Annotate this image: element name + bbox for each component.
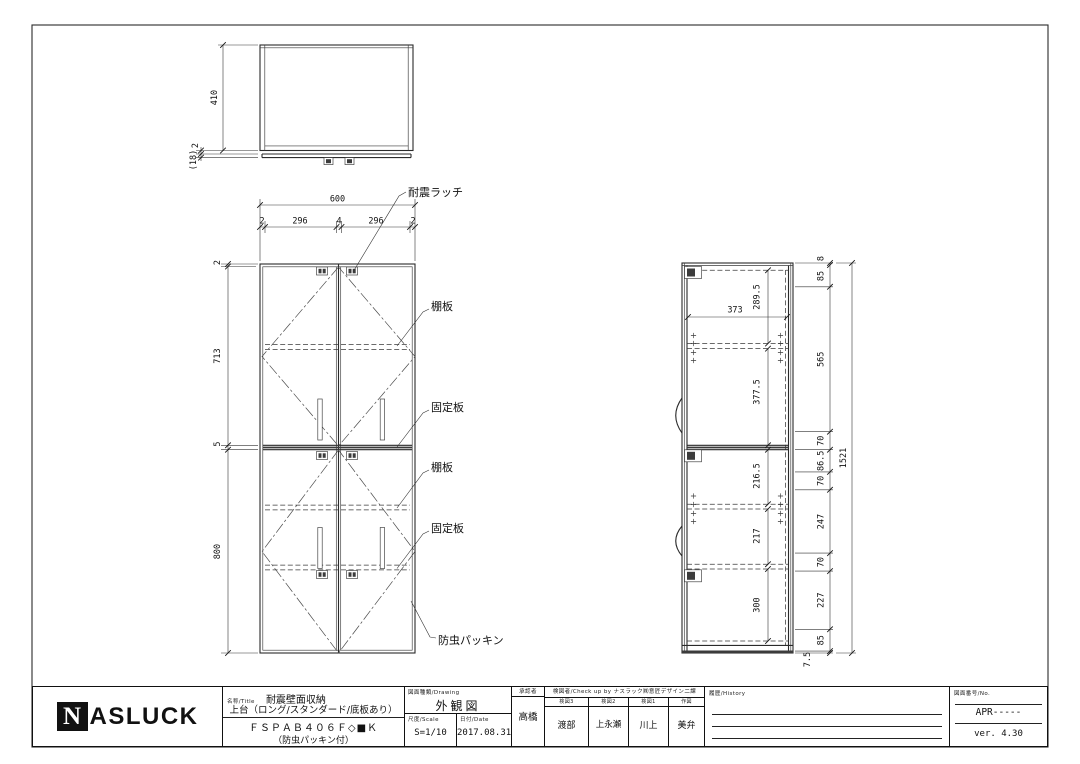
callout-fixed-lower: 固定板 [431,521,464,535]
dim-depth: 410 [210,90,220,105]
dim-seg-5: 2 [410,217,415,227]
nasluck-logo-text: ASLUCK [90,703,199,731]
chain-70a: 70 [817,436,827,446]
title-cell: 名称/Title 耐震壁面収納 上台（ロング/スタンダード/底板あり） ＦＳＰＡ… [222,687,404,746]
dim-h-4: 800 [213,544,223,559]
chain-8: 8 [817,256,827,261]
history-cell: 履歴/History [704,687,949,746]
callout-packing: 防虫パッキン [438,633,504,647]
date-cell: 日付/Date 2017.08.31 [457,714,511,746]
dim-shelf-to-divider: 377.5 [753,379,763,405]
checker-col-2: 検図2 上永瀬 [588,698,628,746]
checker-name-3: 川上 [629,718,668,731]
callout-shelf-upper: 棚板 [431,299,453,313]
checker-name-4: 美弁 [669,718,704,731]
front-cabinet [260,264,415,653]
number-value: APR----- [950,707,1047,718]
number-line-bottom [955,723,1042,724]
history-label: 履歴/History [709,689,745,697]
number-label: 図面番号/No. [954,689,990,697]
drawing-canvas: 410 2 (18) 600 2 296 4 296 2 [0,0,1080,764]
chain-86-5: 86.5 [817,451,827,471]
checker-col-3: 検図1 川上 [628,698,668,746]
chain-7-5: 7.5 [803,652,813,667]
history-line-1 [712,714,942,715]
callout-shelf-lower: 棚板 [431,460,453,474]
callout-latch: 耐震ラッチ [408,186,463,199]
side-view: 289.5 373 377.5 216.5 217 300 8 85 565 7… [676,256,856,667]
handle-profile-lower [676,526,682,556]
page-border [32,25,1048,747]
dim-door-thickness: (18) [189,150,199,170]
dim-shelf-to-fixed: 217 [753,528,763,543]
dim-top-gap: 2 [191,143,201,148]
top-view: 410 2 (18) [189,42,413,170]
handle-profile-upper [676,398,682,433]
dim-inner-width: 373 [727,306,742,316]
dim-seg-2: 296 [292,217,307,227]
history-line-2 [712,726,942,727]
date-value: 2017.08.31 [457,728,511,738]
date-label: 日付/Date [460,715,489,723]
checker-role-2: 検図2 [589,698,628,707]
scale-cell: 尺度/Scale S=1/10 [405,714,457,746]
checkup-label: 検図者/Check up by ナスラック㈱意匠デザイン二課 [545,687,704,698]
dim-overall-height: 1521 [839,448,849,468]
drawing-name: 外観図 [405,697,511,714]
chain-247: 247 [817,514,827,529]
logo-cell: N ASLUCK [33,687,222,746]
dim-seg-1: 2 [259,217,264,227]
front-height-dims: 2 713 5 800 [213,260,258,656]
chain-227: 227 [817,593,827,608]
history-line-3 [712,738,942,739]
drawing-cell: 図面種類/Drawing 外観図 尺度/Scale S=1/10 日付/Date… [404,687,511,746]
front-view: 600 2 296 4 296 2 [213,186,504,656]
dim-h-2: 713 [213,348,223,363]
dim-fixed-to-bottom: 300 [753,597,763,612]
side-chain-dims: 8 85 565 70 86.5 70 247 70 227 85 7.5 15… [795,256,856,667]
model-note: （防虫パッキン付） [223,733,404,746]
version-value: ver. 4.30 [950,729,1047,739]
title-divider [223,717,404,718]
checker-col-4: 作図 美弁 [668,698,704,746]
dim-h-3: 5 [213,441,223,446]
nasluck-logo: N ASLUCK [33,687,222,746]
checker-col-1: 検図3 渡部 [545,698,588,746]
nasluck-logo-n: N [57,702,88,731]
dim-divider-to-shelf: 216.5 [753,463,763,489]
top-view-dims: 410 2 (18) [189,42,258,170]
drawing-sheet: 410 2 (18) 600 2 296 4 296 2 [0,0,1080,764]
side-cabinet [676,263,793,653]
checker-role-3: 検図1 [629,698,668,707]
checker-role-1: 検図3 [545,698,588,707]
checkers-cell: 検図者/Check up by ナスラック㈱意匠デザイン二課 検図3 渡部 検図… [544,687,704,746]
number-line-top [955,704,1042,705]
dim-width: 600 [330,195,345,205]
approver-name: 高橋 [512,709,544,723]
chain-85b: 85 [817,635,827,645]
chain-85a: 85 [817,271,827,281]
approver-cell: 承認者 高橋 [511,687,544,746]
checker-name-1: 渡部 [545,718,588,731]
chain-565: 565 [817,352,827,367]
scale-label: 尺度/Scale [408,715,439,723]
drawing-label: 図面種類/Drawing [408,688,460,696]
dim-top-to-shelf: 289.5 [753,284,763,310]
checker-name-2: 上永瀬 [589,718,628,730]
scale-value: S=1/10 [405,728,456,738]
approver-label: 承認者 [512,687,544,697]
chain-70c: 70 [817,557,827,567]
dim-h-1: 2 [213,260,223,265]
product-subtitle: 上台（ロング/スタンダード/底板あり） [223,702,404,716]
latch-plan-icons [324,158,354,165]
number-cell: 図面番号/No. APR----- ver. 4.30 [949,687,1047,746]
chain-70b: 70 [817,476,827,486]
checker-role-4: 作図 [669,698,704,707]
title-block: N ASLUCK 名称/Title 耐震壁面収納 上台（ロング/スタンダード/底… [32,686,1048,747]
model-code: ＦＳＰＡＢ４０６Ｆ◇■Ｋ [223,719,404,733]
callout-fixed-upper: 固定板 [431,400,464,414]
dim-seg-3: 4 [336,217,341,227]
